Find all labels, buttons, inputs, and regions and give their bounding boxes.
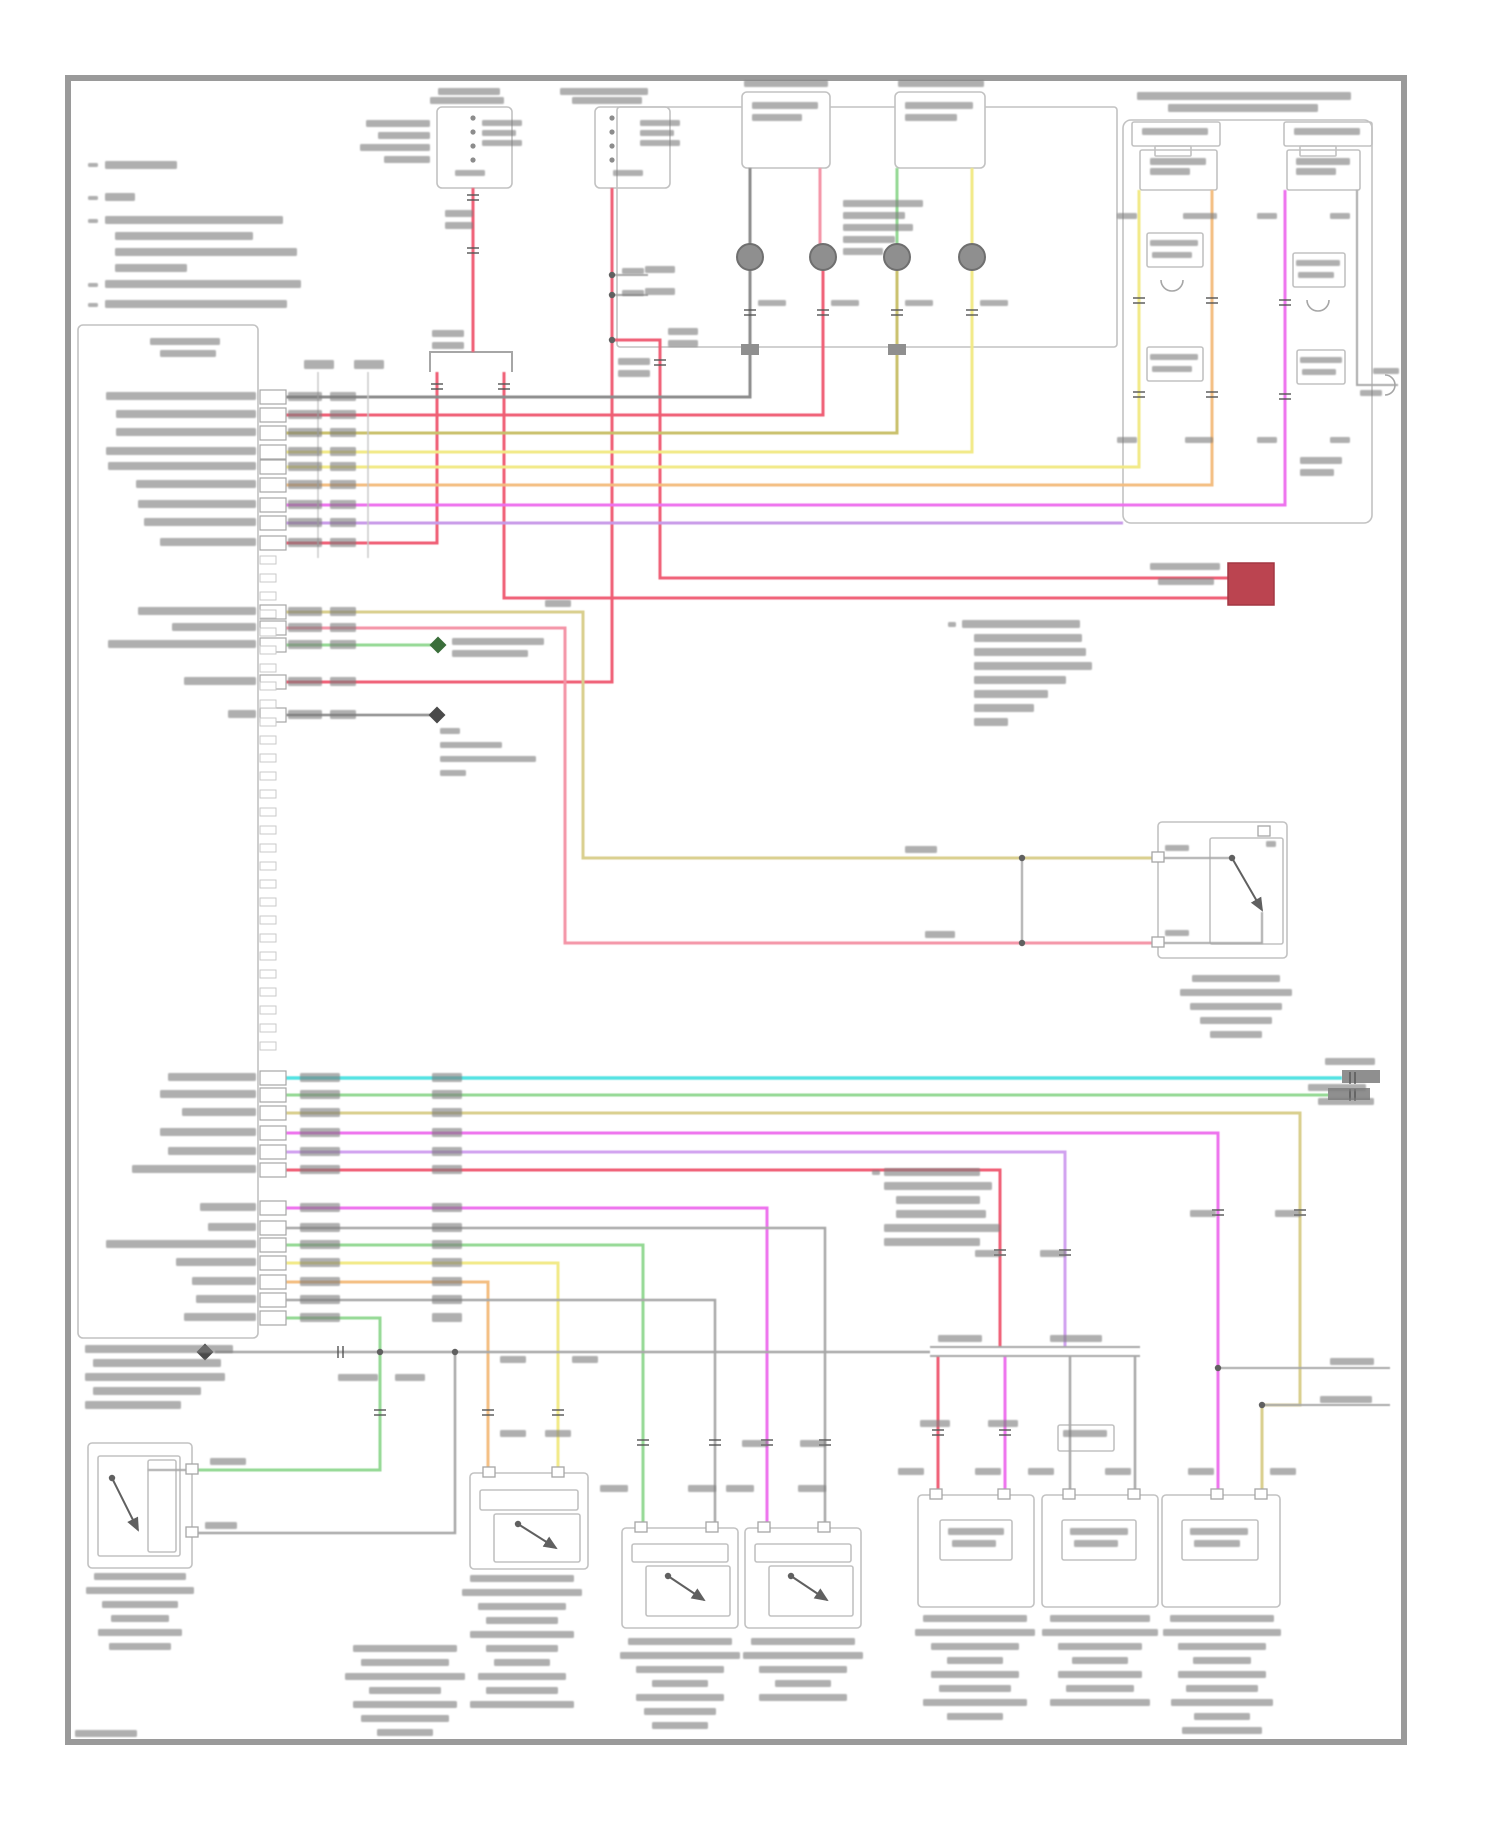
illegible-text <box>872 1170 880 1175</box>
illegible-text <box>432 1277 462 1286</box>
terminal-pin <box>1128 1489 1140 1499</box>
pin-stub <box>260 826 276 834</box>
fuse-dot <box>609 115 614 120</box>
illegible-text <box>478 1673 566 1680</box>
illegible-text <box>288 607 322 616</box>
illegible-text <box>486 1617 558 1624</box>
pin-stub <box>260 844 276 852</box>
pin-box <box>260 408 286 422</box>
offpage-terminal <box>1228 563 1274 605</box>
illegible-text <box>288 677 322 686</box>
fuse-dot <box>609 143 614 148</box>
pin-box <box>260 1201 286 1215</box>
illegible-text <box>1142 128 1208 135</box>
junction-dot <box>452 1349 458 1355</box>
illegible-text <box>1050 1335 1102 1342</box>
illegible-text <box>1180 989 1292 996</box>
illegible-text <box>751 1638 855 1645</box>
illegible-text <box>369 1687 441 1694</box>
illegible-text <box>288 410 322 419</box>
pin-box <box>260 536 286 550</box>
illegible-text <box>843 248 883 255</box>
pin-box <box>260 426 286 440</box>
illegible-text <box>962 620 1080 628</box>
illegible-text <box>974 648 1086 656</box>
illegible-text <box>361 1659 449 1666</box>
illegible-text <box>452 638 544 645</box>
bottom-box-5 <box>1042 1495 1158 1607</box>
dark-component <box>888 344 906 355</box>
illegible-text <box>105 280 301 288</box>
illegible-text <box>628 1638 732 1645</box>
illegible-text <box>1117 437 1137 443</box>
illegible-text <box>636 1666 724 1673</box>
illegible-text <box>1066 1685 1134 1692</box>
illegible-text <box>470 1701 574 1708</box>
illegible-text <box>395 1374 425 1381</box>
illegible-text <box>1070 1528 1128 1535</box>
illegible-text <box>208 1223 256 1231</box>
fuse-dot <box>470 143 475 148</box>
illegible-text <box>105 300 287 308</box>
illegible-text <box>884 1182 992 1190</box>
pin-box <box>260 1071 286 1085</box>
illegible-text <box>132 1165 256 1173</box>
illegible-text <box>108 462 256 470</box>
pin-box <box>260 498 286 512</box>
illegible-text <box>1192 975 1280 982</box>
illegible-text <box>974 634 1082 642</box>
illegible-text <box>923 1615 1027 1622</box>
illegible-text <box>432 1073 462 1082</box>
illegible-text <box>1300 469 1334 476</box>
junction-dot <box>1259 1402 1265 1408</box>
illegible-text <box>1182 1727 1262 1734</box>
illegible-text <box>200 1203 256 1211</box>
illegible-text <box>182 1108 256 1116</box>
illegible-text <box>905 102 973 109</box>
illegible-text <box>948 622 956 627</box>
pin-box <box>260 1088 286 1102</box>
terminal-pin <box>818 1522 830 1532</box>
terminal-pin <box>930 1489 942 1499</box>
illegible-text <box>330 538 356 547</box>
illegible-text <box>1074 1540 1118 1547</box>
illegible-text <box>288 640 322 649</box>
illegible-text <box>843 236 895 243</box>
illegible-text <box>988 1420 1018 1427</box>
pin-stub <box>260 790 276 798</box>
wire-37 <box>192 1318 380 1470</box>
illegible-text <box>884 1238 980 1246</box>
pin-stub <box>260 808 276 816</box>
pin-stub <box>260 736 276 744</box>
illegible-text <box>160 1128 256 1136</box>
junction-dot <box>609 272 615 278</box>
illegible-text <box>618 370 650 377</box>
illegible-text <box>300 1073 340 1082</box>
wire-19 <box>286 628 1158 943</box>
illegible-text <box>843 200 923 207</box>
illegible-text <box>652 1722 708 1729</box>
illegible-text <box>1150 158 1206 165</box>
illegible-text <box>88 219 98 223</box>
illegible-text <box>438 88 500 95</box>
illegible-text <box>1330 1358 1374 1365</box>
illegible-text <box>462 1589 582 1596</box>
illegible-text <box>300 1165 340 1174</box>
illegible-text <box>974 676 1066 684</box>
right-comp-2 <box>1293 253 1345 287</box>
illegible-text <box>884 1168 980 1176</box>
illegible-text <box>1072 1657 1128 1664</box>
illegible-text <box>931 1671 1019 1678</box>
coil-circle <box>959 244 985 270</box>
illegible-text <box>150 338 220 345</box>
illegible-text <box>1150 563 1220 570</box>
illegible-text <box>288 428 322 437</box>
illegible-text <box>1183 213 1217 219</box>
illegible-text <box>931 1643 1019 1650</box>
pin-box <box>260 1106 286 1120</box>
illegible-text <box>1190 1003 1282 1010</box>
pin-stub <box>260 988 276 996</box>
illegible-text <box>898 1468 924 1475</box>
illegible-text <box>1186 1685 1258 1692</box>
illegible-text <box>752 114 802 121</box>
terminal-pin <box>1211 1489 1223 1499</box>
illegible-text <box>116 428 256 436</box>
illegible-text <box>205 1522 237 1529</box>
illegible-text <box>645 288 675 295</box>
pin-box <box>260 1275 286 1289</box>
illegible-text <box>1298 272 1334 278</box>
dark-component <box>1342 1070 1380 1083</box>
illegible-text <box>378 132 430 139</box>
illegible-text <box>560 88 648 95</box>
bottom-box-6 <box>1162 1495 1280 1607</box>
illegible-text <box>300 1108 340 1117</box>
illegible-text <box>1300 357 1342 363</box>
illegible-text <box>98 1629 182 1636</box>
fuse-dot <box>470 129 475 134</box>
pin-box <box>260 390 286 404</box>
illegible-text <box>758 300 786 306</box>
illegible-text <box>1158 578 1214 585</box>
illegible-text <box>1171 1699 1273 1706</box>
wire-29 <box>286 1152 1065 1347</box>
illegible-text <box>800 1440 826 1447</box>
illegible-text <box>196 1295 256 1303</box>
illegible-text <box>330 710 356 719</box>
illegible-text <box>1117 213 1137 219</box>
illegible-text <box>105 216 283 224</box>
illegible-text <box>545 1430 571 1437</box>
illegible-text <box>1360 390 1382 396</box>
pin-box <box>260 1256 286 1270</box>
illegible-text <box>1150 168 1190 175</box>
illegible-text <box>486 1645 558 1652</box>
illegible-text <box>184 677 256 685</box>
illegible-text <box>138 607 256 615</box>
illegible-text <box>1178 1643 1266 1650</box>
pin-stub <box>260 646 276 654</box>
illegible-text <box>354 360 384 369</box>
illegible-text <box>744 80 828 87</box>
coil-circle <box>884 244 910 270</box>
illegible-text <box>116 410 256 418</box>
illegible-text <box>300 1258 340 1267</box>
illegible-text <box>618 358 650 365</box>
illegible-text <box>353 1701 457 1708</box>
component-boxes <box>78 92 1372 1628</box>
illegible-text <box>288 538 322 547</box>
splice-diamond <box>430 637 447 654</box>
illegible-text <box>361 1715 449 1722</box>
pin-stub <box>260 772 276 780</box>
illegible-text <box>974 690 1048 698</box>
terminal-pin <box>706 1522 718 1532</box>
illegible-text <box>432 1295 462 1304</box>
illegible-text <box>752 102 818 109</box>
terminal-pin <box>552 1467 564 1477</box>
illegible-text <box>920 1420 950 1427</box>
illegible-text <box>884 1224 1000 1232</box>
illegible-text <box>798 1485 826 1492</box>
illegible-text <box>300 1313 340 1322</box>
wire-11 <box>286 257 897 433</box>
coil-circle <box>737 244 763 270</box>
illegible-text <box>160 538 256 546</box>
illegible-text <box>600 1485 628 1492</box>
illegible-text <box>288 480 322 489</box>
illegible-text <box>572 1356 598 1363</box>
fuse-dot <box>470 115 475 120</box>
illegible-text <box>176 1258 256 1266</box>
illegible-text <box>640 130 674 136</box>
illegible-text <box>93 1359 221 1367</box>
illegible-text <box>622 268 644 274</box>
illegible-text <box>1294 128 1360 135</box>
illegible-text <box>105 193 135 201</box>
junction-dot <box>1019 940 1025 946</box>
illegible-text <box>947 1657 1003 1664</box>
illegible-text <box>1266 841 1276 847</box>
illegible-text <box>288 447 322 456</box>
illegible-text <box>898 80 984 87</box>
illegible-text <box>896 1210 986 1218</box>
illegible-text <box>432 330 464 337</box>
illegible-text <box>115 232 253 240</box>
illegible-text <box>1152 252 1192 258</box>
pin-box <box>260 1163 286 1177</box>
illegible-text <box>330 607 356 616</box>
illegible-text <box>1040 1250 1066 1257</box>
illegible-text <box>384 156 430 163</box>
illegible-text <box>111 1615 169 1622</box>
illegible-text <box>300 1223 340 1232</box>
pin-stub <box>260 664 276 672</box>
illegible-text <box>85 1401 181 1409</box>
left-control-module <box>78 325 258 1338</box>
illegible-text <box>94 1573 186 1580</box>
illegible-text <box>1296 260 1340 266</box>
illegible-text <box>300 1147 340 1156</box>
illegible-text <box>136 480 256 488</box>
illegible-text <box>160 350 216 357</box>
illegible-text <box>1058 1671 1142 1678</box>
illegible-text <box>1210 1031 1262 1038</box>
illegible-text <box>759 1666 847 1673</box>
illegible-text <box>1150 354 1198 360</box>
illegible-text <box>843 224 913 231</box>
illegible-text <box>300 1203 340 1212</box>
illegible-text <box>620 1652 740 1659</box>
right-comp-1 <box>1147 233 1203 267</box>
pin-box <box>260 478 286 492</box>
pin-box <box>260 1311 286 1325</box>
illegible-text <box>1257 213 1277 219</box>
illegible-text <box>974 662 1092 670</box>
illegible-text <box>288 623 322 632</box>
pin-stub <box>260 970 276 978</box>
illegible-text <box>88 196 98 200</box>
illegible-text <box>1330 213 1350 219</box>
terminal-pin <box>1063 1489 1075 1499</box>
illegible-text <box>330 410 356 419</box>
illegible-text <box>432 1313 462 1322</box>
illegible-text <box>160 1090 256 1098</box>
illegible-text <box>210 1458 246 1465</box>
illegible-text <box>330 518 356 527</box>
illegible-text <box>1028 1468 1054 1475</box>
illegible-text <box>330 392 356 401</box>
illegible-text <box>1165 845 1189 851</box>
illegible-text <box>144 518 256 526</box>
illegible-text <box>432 1108 462 1117</box>
junction-dot <box>1019 855 1025 861</box>
illegible-text <box>1163 1629 1281 1636</box>
illegible-text <box>688 1485 716 1492</box>
illegible-text <box>353 1645 457 1652</box>
illegible-text <box>88 283 98 287</box>
terminal-pin <box>1255 1489 1267 1499</box>
illegible-text <box>923 1699 1027 1706</box>
illegible-text <box>1296 168 1336 175</box>
illegible-text <box>138 500 256 508</box>
illegible-text <box>1050 1615 1150 1622</box>
illegible-text <box>288 392 322 401</box>
illegible-text <box>432 1240 462 1249</box>
illegible-text <box>304 360 334 369</box>
junction-dot <box>377 1349 383 1355</box>
pin-box <box>260 516 286 530</box>
junction-dot <box>609 292 615 298</box>
illegible-text <box>345 1673 465 1680</box>
pin-stub <box>260 880 276 888</box>
illegible-text <box>905 846 937 853</box>
illegible-text <box>974 718 1008 726</box>
illegible-text <box>106 447 256 455</box>
illegible-text <box>432 1090 462 1099</box>
illegible-text <box>85 1345 233 1353</box>
illegible-text <box>1330 437 1350 443</box>
fuse-dot <box>470 157 475 162</box>
pin-box <box>260 460 286 474</box>
illegible-text <box>482 120 522 126</box>
pin-stub <box>260 700 276 708</box>
illegible-text <box>1058 1643 1142 1650</box>
illegible-text <box>636 1694 724 1701</box>
fuse-dot <box>609 157 614 162</box>
pin-stub <box>260 898 276 906</box>
illegible-text <box>905 300 933 306</box>
wiring-diagram <box>0 0 1500 1828</box>
pin-box <box>260 1221 286 1235</box>
illegible-text <box>1200 1017 1272 1024</box>
wire-13 <box>286 190 1139 467</box>
illegible-text <box>974 704 1034 712</box>
illegible-text <box>640 120 680 126</box>
illegible-text <box>952 1540 996 1547</box>
illegible-text <box>1188 1468 1214 1475</box>
right-comp-3 <box>1147 347 1203 381</box>
illegible-text <box>1165 930 1189 936</box>
illegible-text <box>1194 1540 1240 1547</box>
pin-stub <box>260 862 276 870</box>
illegible-text <box>300 1240 340 1249</box>
illegible-text <box>478 1603 566 1610</box>
illegible-text <box>1296 158 1350 165</box>
illegible-text <box>1300 457 1342 464</box>
illegible-text <box>1320 1396 1372 1403</box>
pin-box <box>260 1238 286 1252</box>
dark-component <box>741 344 759 355</box>
illegible-text <box>1325 1058 1375 1065</box>
illegible-text <box>1150 240 1198 246</box>
illegible-text <box>115 248 297 256</box>
wiring-diagram-page <box>0 0 1500 1828</box>
illegible-text <box>1194 1713 1250 1720</box>
terminal-pin <box>186 1464 198 1474</box>
illegible-text <box>88 303 98 307</box>
illegible-text <box>440 728 460 734</box>
illegible-text <box>452 650 528 657</box>
illegible-text <box>360 144 430 151</box>
illegible-text <box>1042 1629 1158 1636</box>
wire-34 <box>286 1263 558 1473</box>
illegible-text <box>975 1468 1001 1475</box>
illegible-text <box>947 1713 1003 1720</box>
illegible-text <box>88 163 98 167</box>
illegible-text <box>896 1196 980 1204</box>
illegible-text <box>925 931 955 938</box>
fuse-dot <box>609 129 614 134</box>
illegible-text <box>482 130 516 136</box>
pin-stub <box>260 1024 276 1032</box>
illegible-text <box>743 1652 863 1659</box>
illegible-text <box>93 1387 201 1395</box>
junction-dot <box>1215 1365 1221 1371</box>
pin-box <box>260 1145 286 1159</box>
illegible-text <box>102 1601 178 1608</box>
illegible-text <box>85 1373 225 1381</box>
illegible-text <box>500 1430 526 1437</box>
illegible-text <box>192 1277 256 1285</box>
illegible-text <box>330 462 356 471</box>
illegible-text <box>288 518 322 527</box>
wire-9 <box>286 257 823 415</box>
